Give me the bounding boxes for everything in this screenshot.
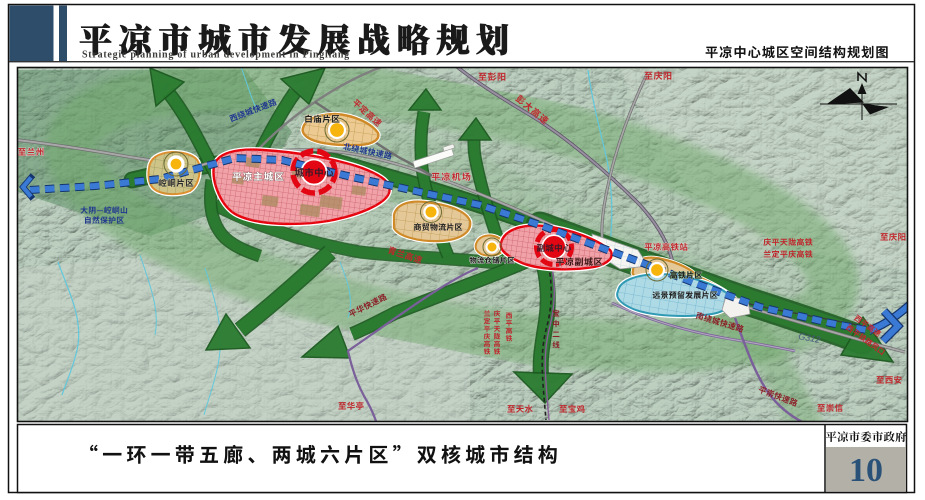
svg-text:10: 10	[849, 452, 883, 489]
svg-text:Strategic planning of urban de: Strategic planning of urban development …	[82, 50, 350, 61]
